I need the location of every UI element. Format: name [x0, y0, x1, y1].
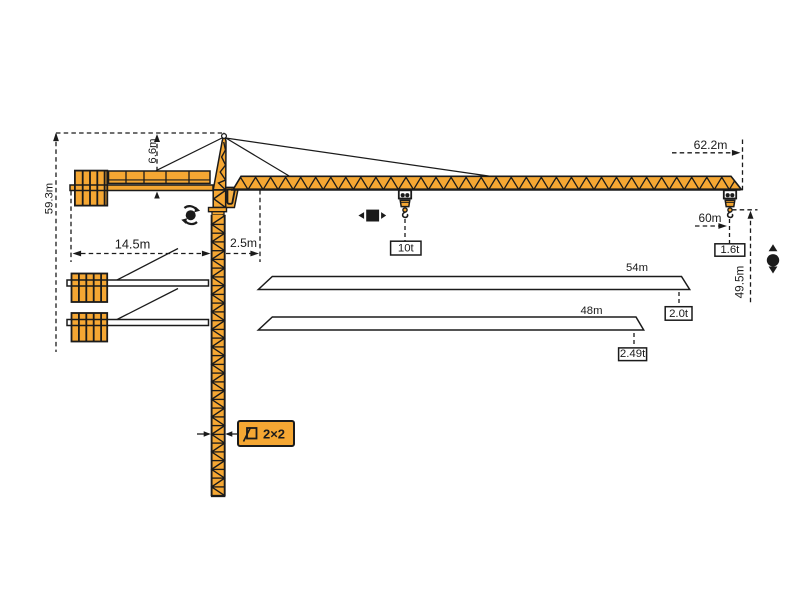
svg-text:48m: 48m: [581, 305, 603, 317]
svg-text:60m: 60m: [699, 211, 722, 225]
svg-text:2.5m: 2.5m: [230, 236, 257, 250]
svg-text:2.49t: 2.49t: [620, 348, 646, 360]
svg-text:1.6t: 1.6t: [720, 244, 740, 256]
svg-text:2×2: 2×2: [263, 427, 285, 442]
svg-text:62.2m: 62.2m: [694, 138, 728, 152]
svg-text:54m: 54m: [626, 262, 648, 274]
svg-text:49.5m: 49.5m: [733, 265, 747, 298]
svg-text:14.5m: 14.5m: [115, 237, 151, 252]
svg-text:2.0t: 2.0t: [669, 308, 689, 320]
svg-text:10t: 10t: [398, 243, 415, 255]
svg-text:6.6m: 6.6m: [147, 138, 159, 163]
svg-text:59.3m: 59.3m: [44, 183, 56, 214]
